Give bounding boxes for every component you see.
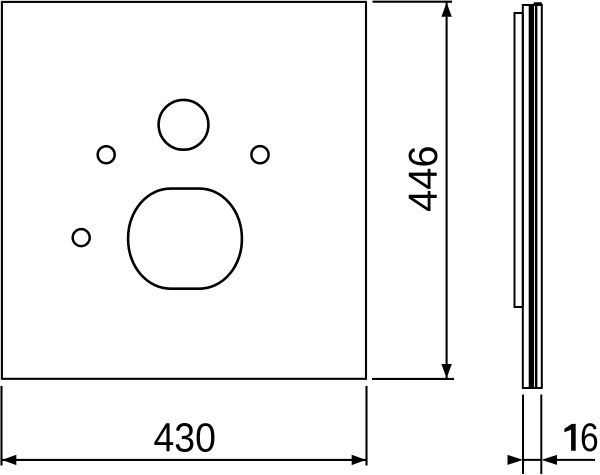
svg-text:446: 446 — [399, 145, 446, 211]
svg-text:430: 430 — [154, 415, 216, 461]
svg-text:6: 6 — [580, 415, 599, 459]
